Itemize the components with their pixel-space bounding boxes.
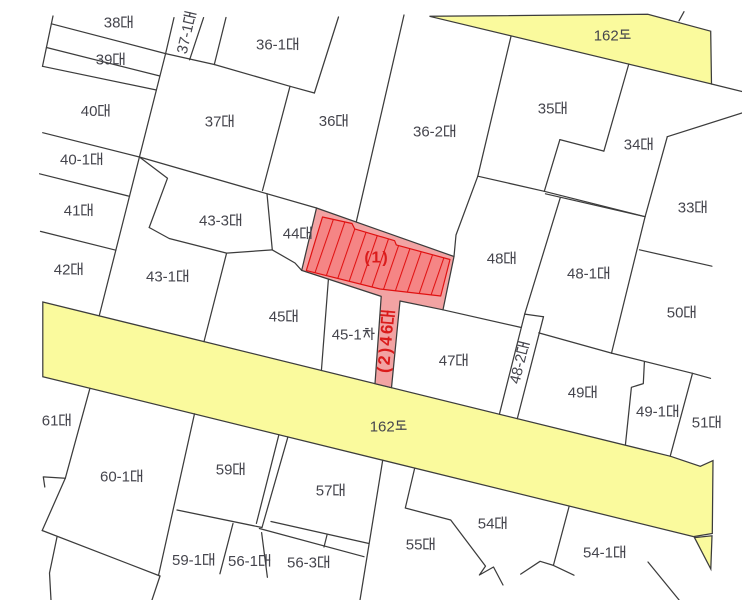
svg-text:44: 44: [283, 225, 300, 242]
svg-text:36-2: 36-2: [413, 123, 443, 140]
svg-text:36: 36: [319, 113, 336, 130]
svg-text:37: 37: [205, 113, 222, 130]
svg-text:61: 61: [42, 412, 59, 429]
svg-text:(1): (1): [364, 250, 387, 267]
svg-text:43-1: 43-1: [146, 268, 176, 285]
svg-text:60-1: 60-1: [100, 468, 130, 485]
svg-text:59: 59: [216, 461, 233, 478]
svg-text:50: 50: [667, 304, 684, 321]
svg-text:42: 42: [54, 261, 71, 278]
svg-text:33: 33: [678, 199, 695, 216]
svg-text:48: 48: [487, 250, 504, 267]
svg-text:39: 39: [96, 51, 113, 68]
svg-text:34: 34: [624, 136, 641, 153]
svg-text:59-1: 59-1: [172, 552, 202, 569]
svg-text:43-3: 43-3: [199, 212, 229, 229]
svg-text:57: 57: [316, 482, 333, 499]
svg-text:40-1: 40-1: [60, 151, 90, 168]
svg-text:54-1: 54-1: [583, 544, 613, 561]
svg-text:41: 41: [64, 202, 81, 219]
svg-text:51: 51: [692, 414, 709, 431]
svg-text:48-1: 48-1: [567, 265, 597, 282]
svg-text:162: 162: [594, 27, 619, 44]
svg-text:40: 40: [81, 103, 98, 120]
svg-text:35: 35: [538, 100, 555, 117]
svg-text:56-3: 56-3: [287, 554, 317, 571]
svg-text:45-1: 45-1: [332, 326, 362, 343]
svg-text:49: 49: [568, 384, 585, 401]
svg-text:36-1: 36-1: [256, 36, 286, 53]
svg-text:38: 38: [104, 14, 121, 31]
svg-text:45: 45: [269, 308, 286, 325]
svg-text:55: 55: [406, 536, 423, 553]
svg-text:49-1: 49-1: [636, 403, 666, 420]
svg-text:47: 47: [439, 352, 456, 369]
svg-text:162: 162: [370, 418, 395, 435]
svg-text:54: 54: [478, 515, 495, 532]
svg-text:56-1: 56-1: [228, 553, 258, 570]
